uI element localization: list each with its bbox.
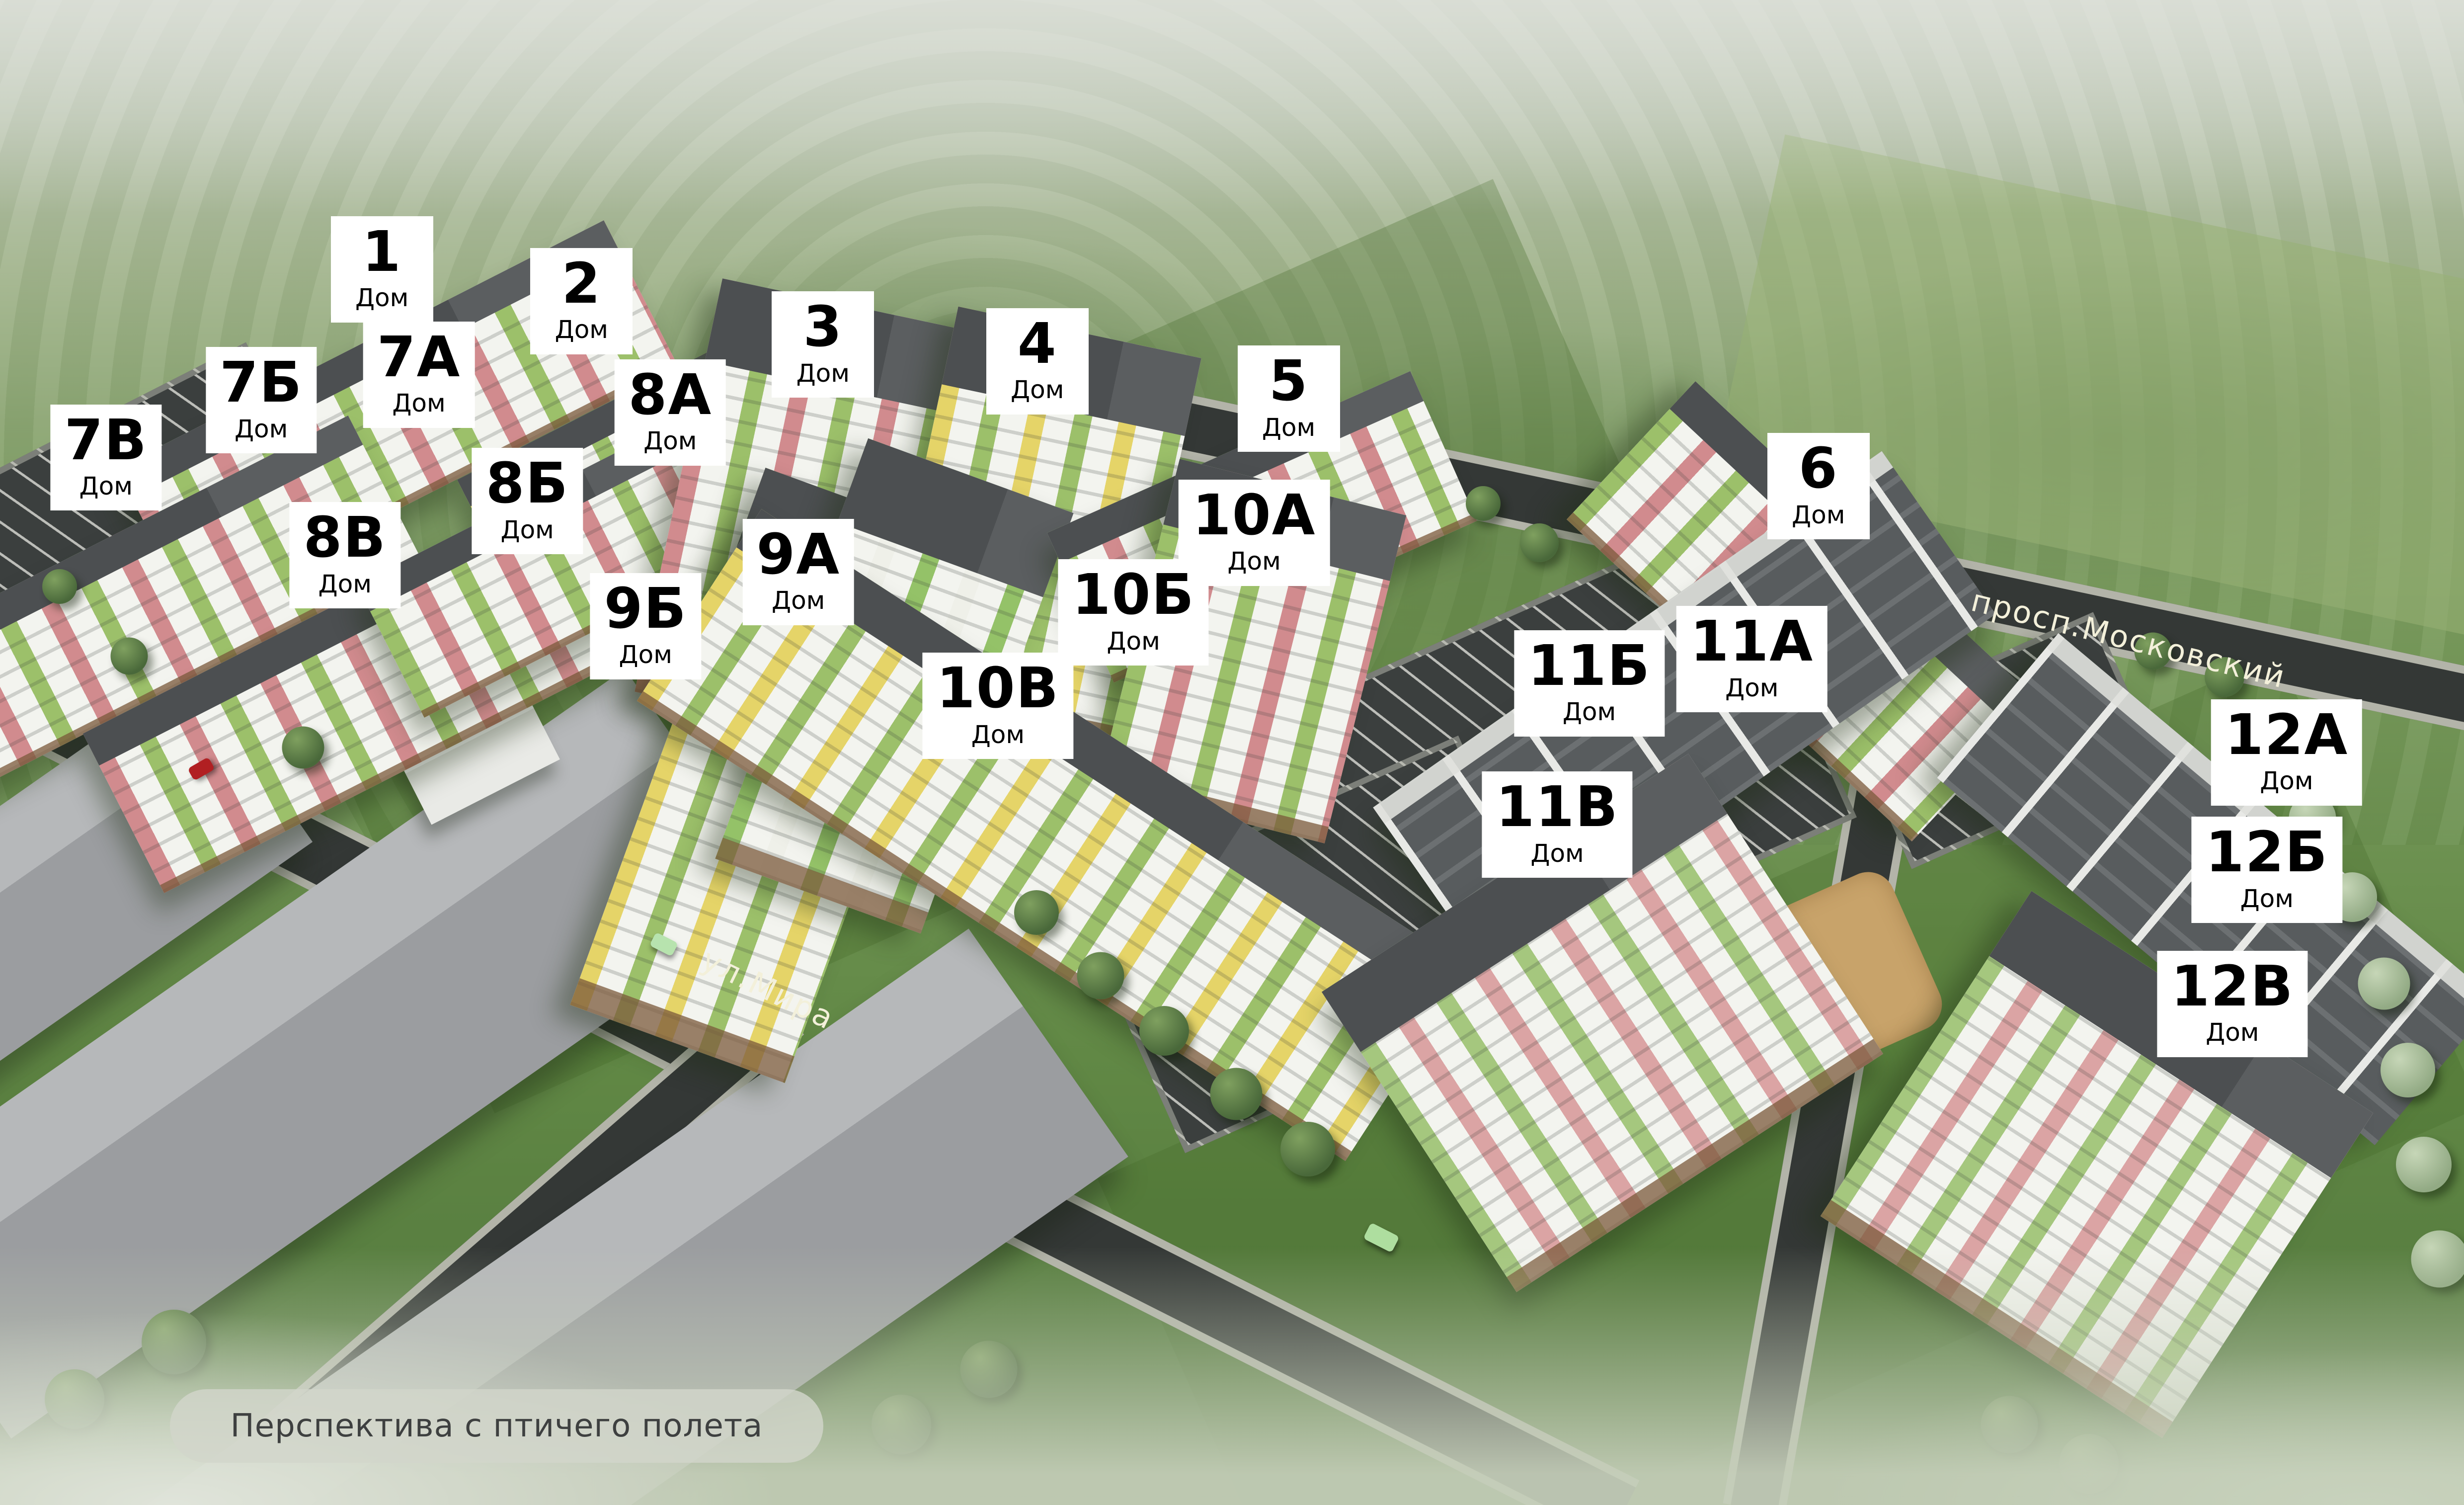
building-label-sub: Дом	[2171, 1018, 2294, 1047]
building-label-sub: Дом	[1528, 698, 1651, 727]
building-label-sub: Дом	[937, 721, 1059, 750]
building-label-sub: Дом	[1690, 674, 1814, 703]
building-number: 10Б	[1072, 566, 1195, 624]
tree	[1014, 890, 1059, 935]
building-label-10Б: 10Б Дом	[1058, 559, 1209, 666]
building-number: 9Б	[604, 580, 687, 638]
haze-top	[0, 0, 2464, 214]
tree	[42, 569, 77, 604]
building-label-sub: Дом	[486, 516, 569, 545]
building-label-sub: Дом	[786, 359, 860, 388]
building-label-sub: Дом	[544, 316, 619, 344]
building-label-8Б: 8Б Дом	[472, 448, 583, 554]
building-number: 6	[1781, 440, 1856, 498]
tree	[2396, 1137, 2452, 1192]
tree	[2381, 1043, 2435, 1097]
building-number: 7А	[377, 329, 461, 386]
building-label-2: 2 Дом	[530, 248, 633, 354]
building-label-11В: 11В Дом	[1482, 771, 1632, 878]
building-label-8В: 8В Дом	[290, 502, 400, 608]
building-number: 7В	[65, 412, 148, 469]
haze-bottom	[0, 1247, 2464, 1505]
building-label-sub: Дом	[604, 641, 687, 669]
building-number: 10А	[1192, 487, 1316, 544]
building-number: 12Б	[2206, 824, 2328, 881]
building-label-sub: Дом	[220, 415, 303, 444]
building-label-sub: Дом	[1496, 839, 1618, 868]
building-number: 8Б	[486, 455, 569, 512]
building-number: 4	[1000, 315, 1075, 373]
building-label-1: 1 Дом	[331, 216, 433, 323]
building-label-sub: Дом	[377, 389, 461, 418]
building-label-7Б: 7Б Дом	[206, 347, 317, 453]
building-number: 11В	[1496, 778, 1618, 836]
building-label-11Б: 11Б Дом	[1514, 630, 1665, 737]
building-label-sub: Дом	[1781, 501, 1856, 530]
building-label-sub: Дом	[2206, 885, 2328, 914]
building-label-9А: 9А Дом	[742, 519, 854, 625]
building-label-12В: 12В Дом	[2157, 951, 2307, 1057]
building-label-4: 4 Дом	[986, 308, 1089, 415]
building-number: 7Б	[220, 354, 303, 412]
building-number: 12А	[2225, 706, 2349, 764]
building-label-sub: Дом	[629, 427, 713, 456]
building-label-11А: 11А Дом	[1676, 606, 1828, 712]
building-label-5: 5 Дом	[1238, 345, 1340, 452]
building-number: 11А	[1690, 613, 1814, 670]
tree	[1520, 523, 1559, 562]
building-number: 12В	[2171, 958, 2294, 1015]
tree	[1139, 1006, 1189, 1056]
building-label-sub: Дом	[2225, 767, 2349, 796]
masterplan-rendering: ул.Мира просп.Московский 1 Дом 2 Дом 3 Д…	[0, 0, 2464, 1505]
tree	[1210, 1068, 1263, 1120]
building-label-12А: 12А Дом	[2211, 699, 2363, 806]
building-label-7В: 7В Дом	[51, 405, 161, 511]
building-label-sub: Дом	[345, 284, 419, 313]
tree	[2358, 958, 2410, 1010]
building-number: 3	[786, 298, 860, 356]
tree	[1280, 1122, 1335, 1176]
building-number: 2	[544, 255, 619, 313]
building-label-3: 3 Дом	[772, 291, 874, 398]
building-label-8А: 8А Дом	[615, 359, 726, 466]
building-number: 9А	[756, 526, 840, 584]
tree	[111, 638, 148, 675]
building-label-sub: Дом	[1072, 627, 1195, 656]
caption-text: Перспектива с птичего полета	[231, 1408, 763, 1444]
caption-pill: Перспектива с птичего полета	[170, 1389, 823, 1463]
building-number: 5	[1252, 352, 1326, 410]
building-label-sub: Дом	[65, 472, 148, 501]
building-label-12Б: 12Б Дом	[2192, 817, 2342, 923]
building-number: 10В	[937, 660, 1059, 717]
building-label-7А: 7А Дом	[363, 322, 475, 428]
building-label-sub: Дом	[304, 570, 387, 599]
building-number: 11Б	[1528, 637, 1651, 695]
building-number: 8В	[304, 509, 387, 567]
building-number: 1	[345, 223, 419, 281]
building-label-sub: Дом	[756, 586, 840, 615]
building-label-sub: Дом	[1252, 414, 1326, 442]
building-label-6: 6 Дом	[1767, 433, 1870, 539]
tree	[282, 727, 324, 769]
building-label-sub: Дом	[1192, 547, 1316, 576]
building-number: 8А	[629, 366, 713, 424]
building-label-sub: Дом	[1000, 376, 1075, 405]
tree	[1466, 486, 1501, 521]
building-label-10В: 10В Дом	[923, 653, 1073, 759]
building-label-9Б: 9Б Дом	[590, 573, 701, 679]
tree	[1077, 952, 1124, 1000]
